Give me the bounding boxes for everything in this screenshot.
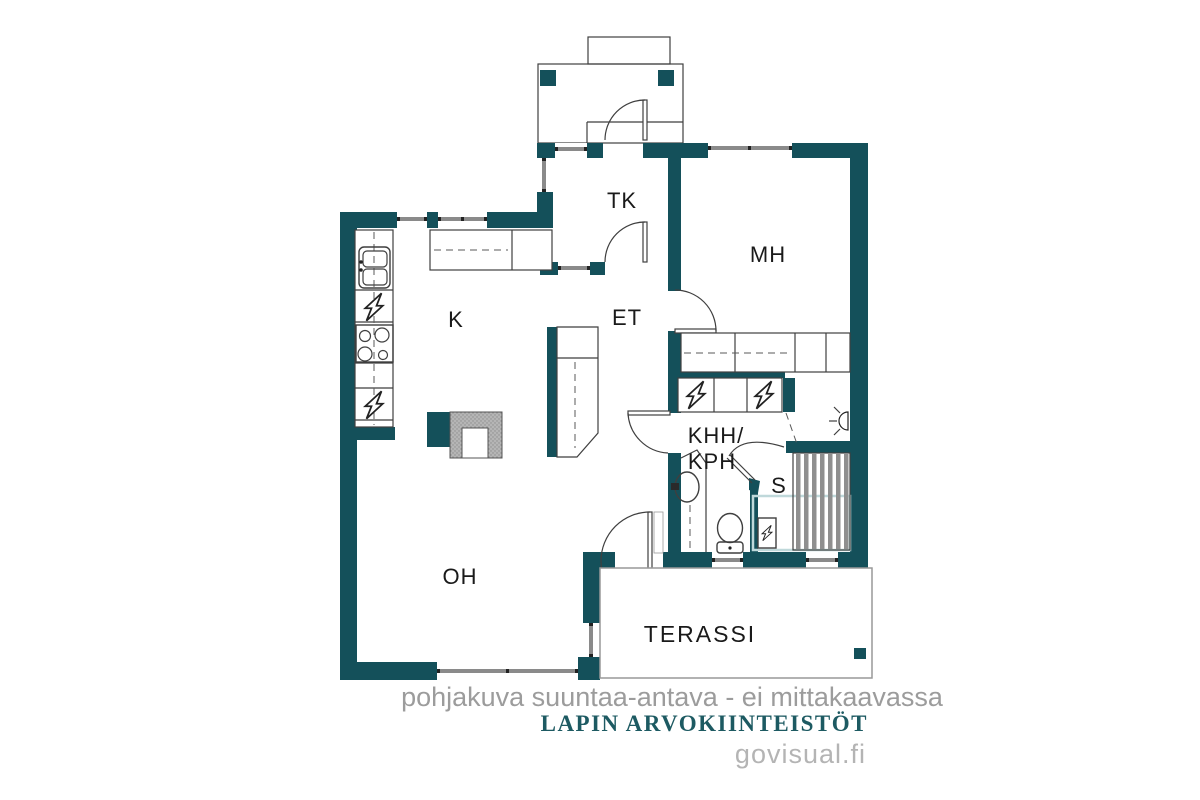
cabinet-back-wall	[547, 327, 557, 457]
terrace-post	[854, 648, 866, 659]
fireplace	[427, 412, 502, 458]
footer: pohjakuva suuntaa-antava - ei mittakaava…	[401, 682, 944, 769]
wall-lamp-icon	[829, 407, 848, 435]
room-label-et: ET	[612, 305, 642, 330]
room-label-k: K	[448, 307, 464, 332]
sauna-benches	[793, 453, 850, 550]
floor-plan-page: TK MH K ET KHH/ KPH S OH TERASSI pohjaku…	[0, 0, 1200, 800]
room-label-tk: TK	[607, 188, 637, 213]
front-door-swing	[605, 100, 645, 140]
laundry-machines	[678, 378, 782, 412]
brand-text: LAPIN ARVOKIINTEISTÖT	[541, 711, 868, 736]
kitchen-counter-north	[430, 230, 552, 270]
mh-closets	[681, 333, 850, 372]
toilet-icon	[717, 514, 743, 554]
front-door-leaf	[643, 100, 647, 140]
floor-plan: TK MH K ET KHH/ KPH S OH TERASSI pohjaku…	[0, 0, 1200, 800]
sauna	[753, 453, 850, 550]
room-label-s: S	[771, 473, 787, 498]
tk-door-swing	[605, 222, 645, 262]
porch-post	[540, 70, 556, 86]
khh-door-leaf	[628, 411, 670, 415]
entrance-porch	[538, 37, 683, 143]
khh-door-swing	[628, 413, 668, 453]
kitchen-wall-stub	[340, 427, 395, 440]
hall-cabinet	[557, 327, 598, 457]
room-label-mh: MH	[750, 242, 786, 267]
porch-post	[658, 70, 674, 86]
room-label-kph: KPH	[688, 449, 736, 474]
shower-area	[786, 407, 848, 444]
porch-steps	[588, 37, 670, 64]
door-jamb	[654, 512, 663, 553]
site-text: govisual.fi	[735, 739, 866, 769]
kitchen-counter-west	[355, 230, 393, 427]
disclaimer-text: pohjakuva suuntaa-antava - ei mittakaava…	[401, 682, 944, 712]
room-label-terassi: TERASSI	[644, 621, 756, 647]
sauna-floor	[753, 496, 850, 550]
room-label-khh: KHH/	[688, 423, 745, 448]
mh-door-swing	[675, 290, 716, 331]
mh-door-leaf	[675, 329, 716, 333]
room-label-oh: OH	[443, 564, 478, 589]
sauna-heater-icon	[758, 518, 776, 548]
tk-door-leaf	[643, 222, 647, 262]
